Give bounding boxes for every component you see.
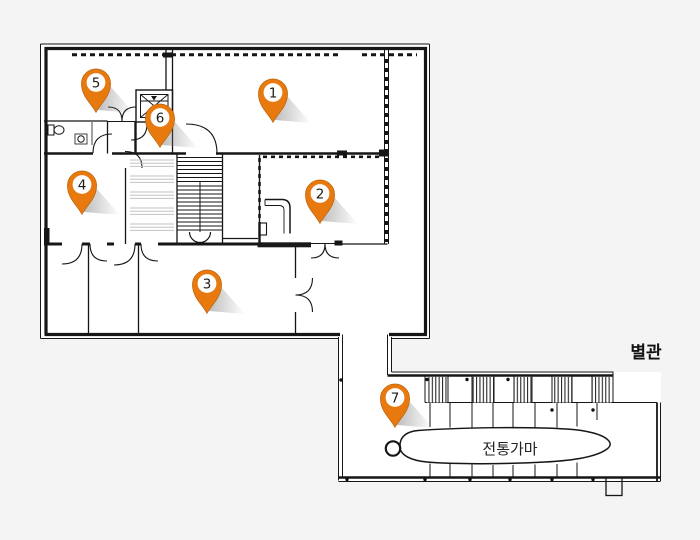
louver-panel: [552, 377, 572, 403]
room2-window-band: [258, 242, 312, 247]
louver-panel: [473, 377, 494, 403]
pin-number: 2: [316, 186, 325, 202]
pin-number: 7: [391, 390, 400, 406]
louver-panel: [427, 377, 447, 403]
louver-panel: [592, 377, 612, 403]
pin-number: 3: [203, 276, 212, 292]
pin-number: 6: [156, 110, 165, 126]
louver-panel: [514, 377, 532, 403]
kiln-label: 전통가마: [482, 441, 537, 458]
pin-number: 1: [269, 85, 278, 101]
pin-number: 4: [78, 177, 87, 193]
pin-number: 5: [92, 75, 101, 91]
annex-label: 별관: [630, 343, 662, 362]
floor-plan-canvas: 전통가마 별관 1 2 3 4 5 6: [0, 0, 700, 540]
floor-plan-svg: 전통가마 별관 1 2 3 4 5 6: [0, 0, 700, 540]
